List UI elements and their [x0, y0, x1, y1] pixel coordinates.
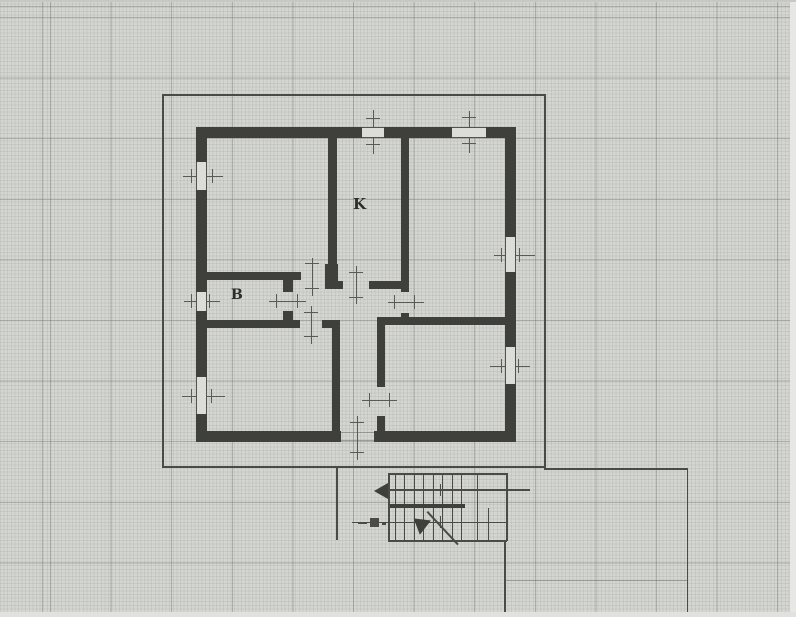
opening-mark	[350, 452, 364, 453]
window-gap	[196, 292, 207, 311]
plan-line	[162, 94, 545, 96]
faint-line	[341, 432, 374, 433]
plan-line	[336, 466, 338, 540]
stair-tread	[404, 508, 405, 540]
opening-mark	[366, 144, 380, 145]
plan-line	[506, 473, 508, 541]
plan-line	[544, 468, 688, 470]
stair-tread	[452, 473, 453, 504]
scan-edge-right	[790, 0, 796, 617]
stair-tread	[414, 473, 415, 504]
wall-segment	[505, 127, 516, 237]
wall-segment	[388, 504, 465, 508]
opening-mark	[462, 117, 476, 118]
stair-down-arrow-icon	[408, 511, 431, 534]
floor-plan-sheet: KB	[0, 0, 796, 617]
opening-mark	[362, 400, 397, 401]
opening-mark	[211, 389, 212, 403]
scan-edge-bottom	[0, 612, 796, 617]
opening-mark	[414, 295, 415, 309]
plan-line	[440, 484, 441, 496]
opening-mark	[518, 359, 519, 373]
plan-line	[504, 541, 506, 617]
room-label-bathroom: B	[231, 288, 243, 302]
plan-line	[162, 466, 545, 468]
stair-tread	[404, 473, 405, 504]
wall-segment	[328, 138, 337, 266]
opening-mark	[366, 118, 380, 119]
wall-segment	[207, 272, 301, 280]
window-gap	[505, 237, 516, 272]
plan-line	[370, 518, 379, 527]
opening-mark	[304, 336, 318, 337]
opening-mark	[501, 248, 502, 262]
opening-mark	[212, 169, 213, 183]
opening-mark	[191, 294, 192, 308]
faint-line	[341, 440, 374, 441]
wall-segment	[196, 127, 207, 162]
opening-mark	[389, 393, 390, 407]
opening-mark	[519, 248, 520, 262]
stair-tread	[461, 508, 462, 540]
wall-segment	[196, 127, 362, 138]
wall-segment	[377, 317, 385, 387]
room-label-kitchen: K	[353, 197, 366, 212]
opening-mark	[269, 301, 306, 302]
faint-line	[505, 580, 687, 581]
wall-segment	[196, 311, 207, 377]
opening-mark	[297, 294, 298, 308]
opening-mark	[191, 169, 192, 183]
wall-segment	[384, 317, 505, 325]
opening-mark	[349, 297, 363, 298]
window-gap	[196, 377, 207, 414]
plan-line	[388, 473, 507, 475]
stair-tread	[461, 473, 462, 504]
wall-segment	[196, 431, 341, 442]
window-gap	[452, 127, 486, 138]
stair-tread	[423, 473, 424, 504]
wall-segment	[374, 431, 516, 442]
plan-line	[687, 468, 689, 617]
plan-line	[382, 523, 386, 525]
wall-segment	[505, 272, 516, 347]
stair-tread	[395, 473, 396, 504]
stair-tread	[433, 508, 434, 540]
opening-mark	[191, 389, 192, 403]
window-gap	[362, 127, 384, 138]
opening-mark	[305, 263, 319, 264]
scan-edge-top	[0, 0, 796, 2]
opening-mark	[209, 294, 210, 308]
wall-segment	[377, 416, 385, 431]
wall-segment	[384, 127, 452, 138]
opening-mark	[350, 422, 364, 423]
plan-line	[388, 473, 390, 541]
wall-segment	[196, 190, 207, 292]
wall-segment	[332, 328, 340, 431]
wall-segment	[207, 320, 300, 328]
opening-mark	[501, 359, 502, 373]
stair-tread	[433, 473, 434, 504]
wall-segment	[322, 320, 340, 328]
window-gap	[505, 347, 516, 384]
plan-line	[358, 522, 367, 524]
plan-line	[378, 489, 530, 491]
wall-segment	[369, 281, 409, 289]
opening-mark	[462, 143, 476, 144]
opening-mark	[369, 393, 370, 407]
stair-tread	[395, 508, 396, 540]
stair-tread	[442, 473, 443, 504]
wall-segment	[336, 281, 343, 289]
plan-line	[162, 94, 164, 467]
opening-mark	[304, 312, 318, 313]
opening-mark	[305, 288, 319, 289]
plan-line	[544, 94, 546, 468]
wall-segment	[401, 138, 409, 292]
plan-line	[477, 473, 478, 541]
plan-line	[488, 508, 489, 541]
stair-up-arrow-icon	[374, 483, 388, 499]
opening-mark	[394, 295, 395, 309]
window-gap	[196, 162, 207, 190]
stair-tread	[452, 508, 453, 540]
opening-mark	[349, 272, 363, 273]
opening-mark	[276, 294, 277, 308]
stair-tread	[442, 508, 443, 540]
